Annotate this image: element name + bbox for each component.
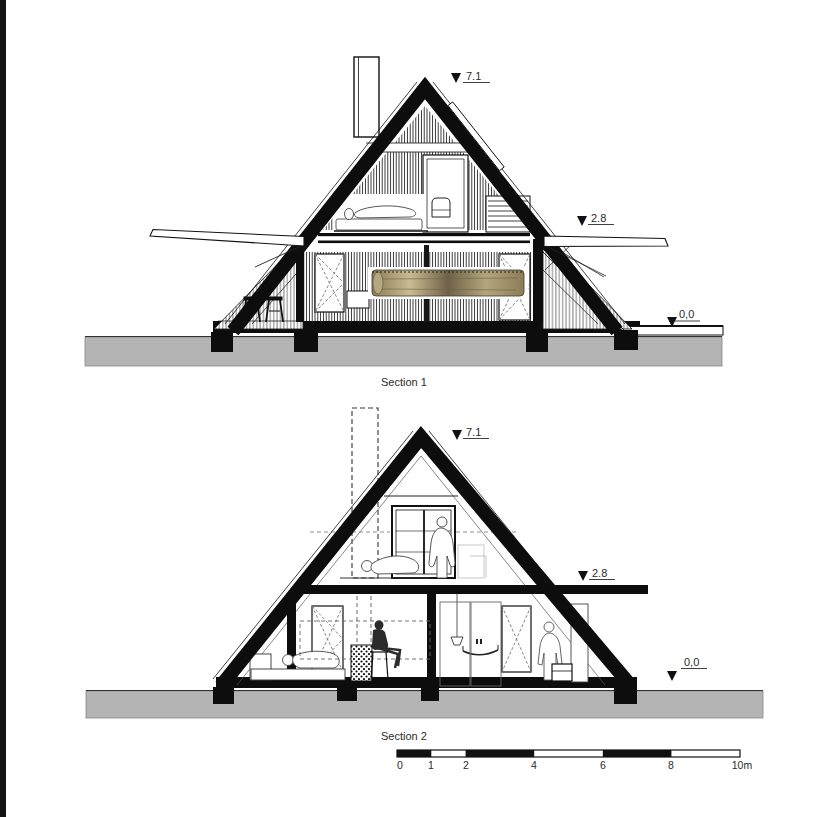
bed <box>251 669 345 680</box>
scale-tick-0: 0 <box>397 759 403 771</box>
elevation-value-ridge: 7.1 <box>466 426 481 438</box>
mattress <box>336 219 422 230</box>
elevation-value-upper-floor: 2.8 <box>592 567 607 579</box>
loft-door <box>423 155 468 232</box>
scale-bar: 0 1 2 4 6 8 10m <box>397 750 752 771</box>
hanging-seat <box>463 639 498 655</box>
architectural-sections-canvas: 7.1 2.8 0,0 Section 1 <box>0 0 827 817</box>
window-right <box>502 606 531 672</box>
person-sitting <box>370 621 400 681</box>
person-lying-loft <box>362 556 419 574</box>
glass-doors <box>440 602 501 686</box>
bench <box>552 664 572 681</box>
elevation-marker-upper-floor: 2.8 <box>578 567 615 581</box>
ground-floor-interior <box>304 245 533 322</box>
window-left <box>315 254 344 312</box>
log-bench <box>368 267 528 299</box>
upper-floor-slab <box>318 233 530 243</box>
left-margin-bar <box>0 0 6 817</box>
section1-title: Section 1 <box>381 376 427 388</box>
elevation-marker-ridge: 7.1 <box>451 70 490 83</box>
drawing-sheet: 7.1 2.8 0,0 Section 1 <box>0 0 827 817</box>
ground-floor-interior <box>250 594 588 688</box>
elevation-marker-upper-floor: 2.8 <box>577 212 614 226</box>
elevation-value-ground: 0,0 <box>684 656 699 668</box>
core-wall-cut <box>427 594 436 688</box>
wall-right-cut <box>533 239 543 322</box>
ghost-desk <box>458 545 486 578</box>
scale-tick-8: 8 <box>668 759 674 771</box>
armchair <box>432 198 450 217</box>
upper-floor-slab <box>300 585 648 594</box>
scale-tick-6: 6 <box>600 759 606 771</box>
chimney <box>354 57 379 137</box>
scale-tick-1: 1 <box>428 759 434 771</box>
elevation-value-ridge: 7.1 <box>466 70 481 82</box>
person-standing-head <box>544 622 554 632</box>
stove <box>351 645 372 681</box>
elevation-marker-ground: 0,0 <box>667 656 707 681</box>
scale-tick-10m: 10m <box>732 759 753 771</box>
scale-tick-2: 2 <box>463 759 469 771</box>
elevation-marker-ridge: 7.1 <box>452 426 489 440</box>
elevation-value-upper-floor: 2.8 <box>591 212 606 224</box>
section2-title: Section 2 <box>381 730 427 742</box>
scale-tick-4: 4 <box>531 759 537 771</box>
picture-frame <box>347 291 369 308</box>
section1-drawing: 7.1 2.8 0,0 Section 1 <box>85 57 723 388</box>
elevation-value-ground: 0,0 <box>679 308 694 320</box>
elevation-marker-ground: 0,0 <box>667 308 700 327</box>
person-standing-loft-head <box>437 517 447 527</box>
section2-drawing: 7.1 2.8 0,0 Section 2 <box>86 408 763 742</box>
